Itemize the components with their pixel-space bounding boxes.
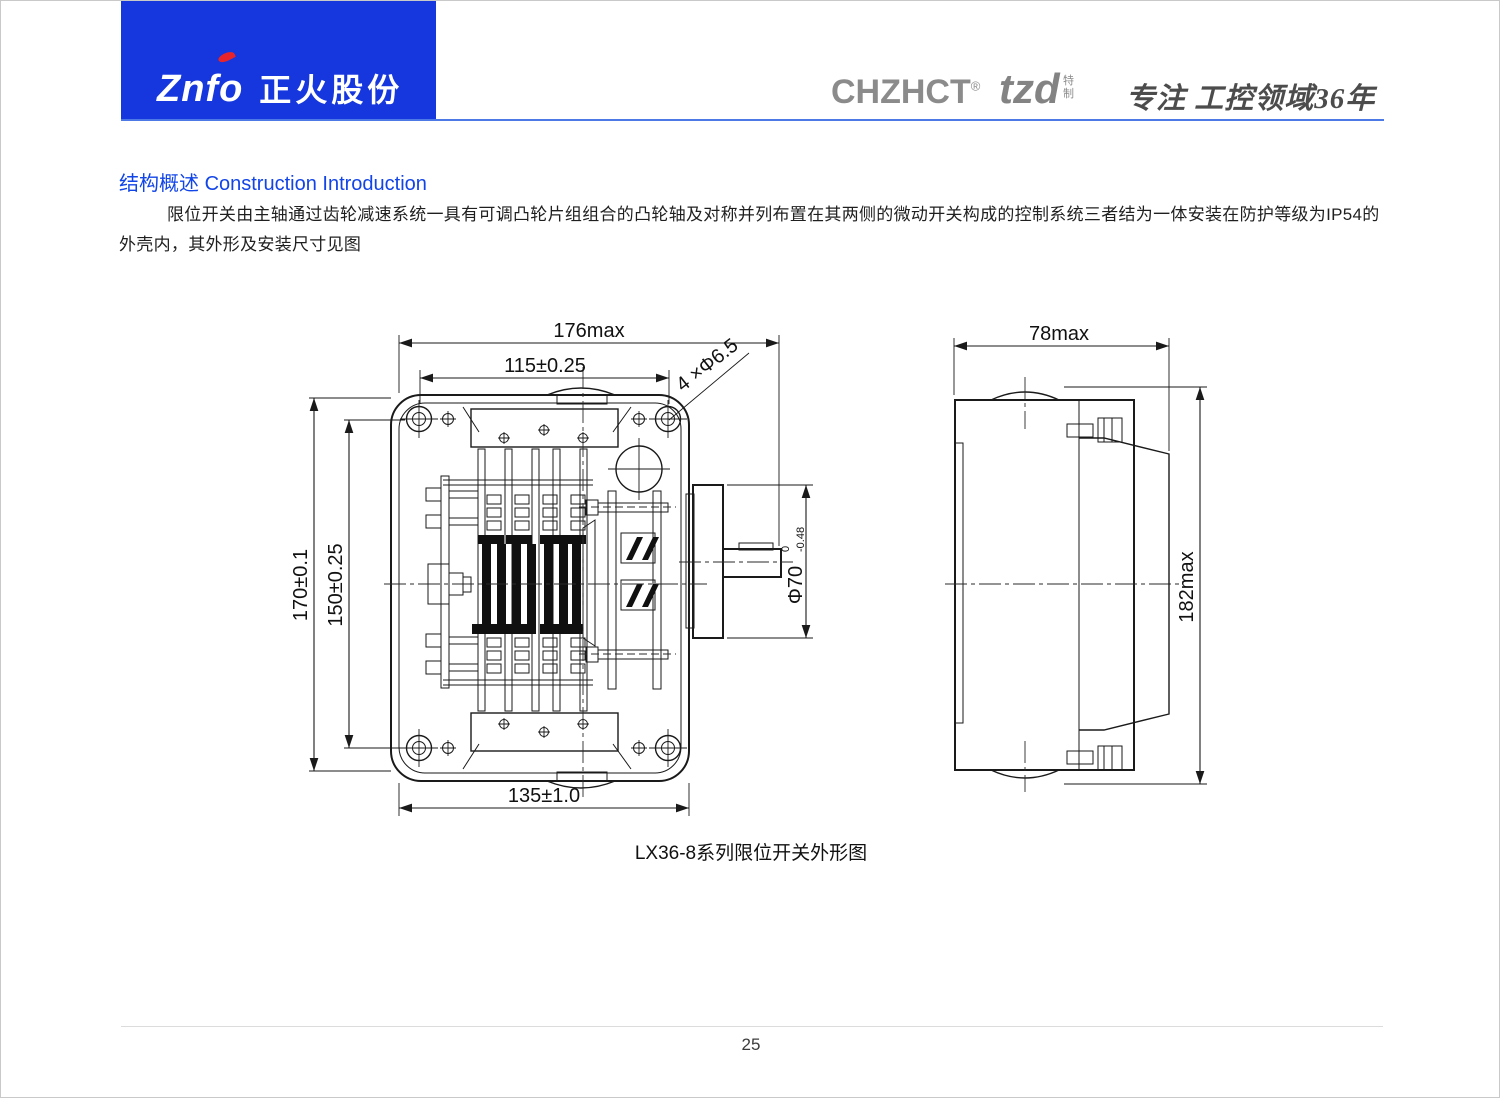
dim-width-outer: 176max — [553, 320, 624, 342]
svg-text:0: 0 — [780, 546, 792, 552]
dim-mount-holes: 4 ×Φ6.5 — [672, 334, 742, 396]
logo-latin: Znfo — [157, 68, 243, 111]
mounting-holes — [400, 400, 687, 767]
brand-chzhct: CHZHCT® — [831, 73, 980, 112]
brand-banner: Znfo 正火股份 — [121, 1, 436, 121]
svg-text:-0.48: -0.48 — [795, 527, 807, 552]
side-view — [945, 377, 1181, 792]
cover-screws — [1067, 418, 1122, 770]
brand-tzd-tag: 特制 — [1063, 75, 1076, 100]
section-body: 限位开关由主轴通过齿轮减速系统一具有可调凸轮片组组合的凸轮轴及对称并列布置在其两… — [119, 200, 1393, 260]
dim-side-width: 78max — [1029, 323, 1089, 345]
header-brands: CHZHCT® tzd 特制 专注 工控领域36年 — [821, 1, 1401, 119]
section-title-cn: 结构概述 — [119, 173, 199, 195]
page-number: 25 — [1, 1035, 1500, 1055]
dim-shaft-diameter: Φ70 0 -0.48 — [780, 527, 807, 604]
logo-flame-icon — [217, 50, 236, 65]
footer-rule — [121, 1026, 1383, 1027]
catalog-page: Znfo 正火股份 CHZHCT® tzd 特制 专注 工控领域36年 结构概述… — [0, 0, 1500, 1098]
registered-mark: ® — [971, 79, 981, 94]
header-rule — [121, 119, 1384, 121]
dim-side-height: 182max — [1176, 551, 1198, 622]
logo-chinese: 正火股份 — [259, 65, 403, 111]
dim-width-bottom: 135±1.0 — [508, 785, 580, 807]
actuator-bracket — [579, 491, 676, 689]
brand-chzhct-text: CHZHCT — [831, 73, 971, 111]
brand-slogan: 专注 工控领域36年 — [1126, 75, 1375, 117]
cam-stack — [472, 535, 586, 634]
technical-drawing: 176max 115±0.25 4 ×Φ6.5 170±0.1 150±0.25… — [281, 301, 1231, 841]
section-title-en: Construction Introduction — [205, 173, 427, 195]
brand-tzd: tzd — [999, 65, 1060, 113]
output-shaft — [686, 485, 781, 638]
section-title: 结构概述 Construction Introduction — [119, 167, 427, 196]
figure-caption: LX36-8系列限位开关外形图 — [556, 838, 946, 865]
dim-height-outer: 170±0.1 — [290, 549, 312, 621]
dim-width-inner: 115±0.25 — [504, 355, 586, 377]
dim-height-inner: 150±0.25 — [325, 543, 347, 626]
svg-text:Φ70: Φ70 — [785, 566, 807, 604]
front-view — [384, 367, 793, 801]
